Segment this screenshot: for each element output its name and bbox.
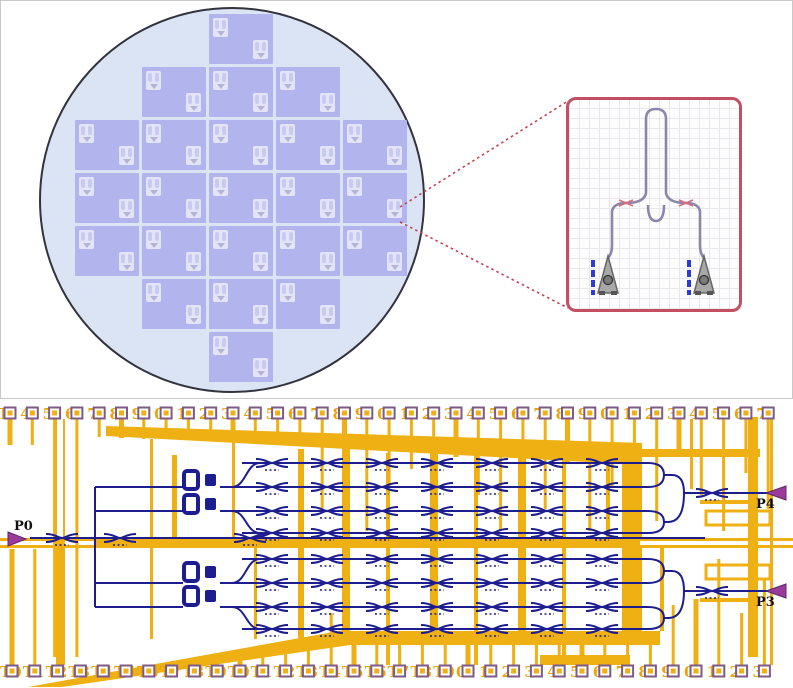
metal-trace: [444, 639, 447, 665]
wafer-die: [142, 226, 206, 276]
wafer-panel: [0, 0, 793, 399]
metal-trace: [770, 417, 773, 665]
die-device-glyph: [186, 199, 201, 218]
waveguide-combiner: [648, 591, 684, 629]
bond-pad-core: [476, 411, 481, 416]
bond-pad-core: [625, 669, 630, 674]
bond-pad-core: [10, 669, 15, 674]
metal-trace: [142, 419, 145, 439]
metal-trace: [655, 419, 658, 521]
bond-pad-core: [766, 411, 771, 416]
die-device-glyph: [253, 40, 268, 59]
wafer-die: [142, 173, 206, 223]
metal-trace: [232, 439, 235, 547]
bond-pad-core: [364, 411, 369, 416]
metal-trace: [284, 642, 287, 665]
die-device-glyph: [186, 146, 201, 165]
metal-trace: [298, 547, 304, 645]
bond-pad-core: [534, 669, 539, 674]
die-device-glyph: [253, 93, 268, 112]
bond-pad-core: [580, 669, 585, 674]
metal-trace: [421, 639, 424, 665]
bond-pad-core: [520, 411, 525, 416]
bond-pad-core: [648, 669, 653, 674]
wafer-die: [209, 14, 273, 64]
die-device-glyph: [213, 18, 228, 37]
die-device-glyph: [387, 146, 402, 165]
metal-trace: [56, 549, 59, 665]
port-label: P3: [756, 595, 775, 610]
bond-pad-core: [374, 669, 379, 674]
die-device-glyph: [146, 71, 161, 90]
metal-trace: [521, 419, 524, 473]
die-device-glyph: [186, 93, 201, 112]
metal-trace: [98, 419, 101, 437]
bond-pad-core: [409, 411, 414, 416]
metal-trace: [603, 639, 606, 665]
die-device-glyph: [387, 252, 402, 271]
die-device-glyph: [253, 305, 268, 324]
wafer-die: [209, 226, 273, 276]
grating-coupler-right: [687, 256, 714, 295]
metal-trace: [633, 419, 636, 469]
metal-trace: [330, 613, 333, 665]
metal-trace: [744, 419, 747, 473]
bond-pad-core: [654, 411, 659, 416]
die-device-glyph: [79, 230, 94, 249]
bond-pad-core: [164, 411, 169, 416]
bond-pad-core: [587, 411, 592, 416]
metal-trace: [611, 419, 614, 487]
bond-pad-core: [215, 669, 220, 674]
die-device-glyph: [146, 124, 161, 143]
metal-loop-trace: [706, 511, 770, 525]
metal-trace: [700, 500, 760, 504]
chip-layout-panel: T4567890123456789012345678901234567T0T1T…: [0, 399, 793, 688]
waveguide-sbend: [232, 463, 260, 533]
metal-trace: [558, 639, 561, 665]
bond-pad-core: [762, 669, 767, 674]
die-device-glyph: [253, 358, 268, 377]
loop-element: [205, 590, 216, 602]
bond-pad-core: [743, 411, 748, 416]
metal-trace: [276, 419, 279, 444]
metal-trace: [512, 639, 515, 665]
metal-trace: [690, 419, 693, 489]
die-device-glyph: [213, 283, 228, 302]
metal-trace: [63, 419, 65, 539]
die-device-glyph: [119, 146, 134, 165]
wafer-die: [209, 332, 273, 382]
die-device-glyph: [146, 230, 161, 249]
waveguide-combiner: [648, 493, 684, 533]
metal-trace: [622, 547, 642, 639]
wafer-die: [142, 279, 206, 329]
bond-pad-core: [208, 411, 213, 416]
die-device-glyph: [146, 283, 161, 302]
zoom-callout: [566, 97, 742, 312]
port-label: P4: [756, 497, 775, 512]
device-waveguide: [608, 109, 704, 258]
bond-pad-core: [30, 411, 35, 416]
bond-pad-core: [119, 411, 124, 416]
bond-pad-core: [397, 669, 402, 674]
waveguide-combiner: [648, 559, 684, 591]
metal-trace: [352, 639, 357, 665]
die-device-glyph: [320, 146, 335, 165]
metal-right-column: [748, 417, 758, 657]
die-device-glyph: [280, 283, 295, 302]
metal-trace: [649, 639, 652, 665]
wafer-die: [276, 67, 340, 117]
bond-pad-core: [231, 411, 236, 416]
bond-pad-core: [488, 669, 493, 674]
bond-pad-core: [557, 669, 562, 674]
metal-trace: [677, 419, 682, 457]
device-detail-drawing: [569, 100, 739, 309]
bond-pad-core: [431, 411, 436, 416]
wafer-die: [142, 67, 206, 117]
wafer-die: [276, 173, 340, 223]
bond-pad-core: [329, 669, 334, 674]
loop-element: [205, 474, 216, 486]
bond-pad-core: [466, 669, 471, 674]
metal-trace: [298, 419, 301, 445]
wafer-die: [209, 120, 273, 170]
bond-pad-core: [632, 411, 637, 416]
metal-trace: [626, 639, 629, 665]
bond-pad-core: [78, 669, 83, 674]
wafer-die: [75, 226, 139, 276]
figure: T4567890123456789012345678901234567T0T1T…: [0, 0, 793, 688]
wafer-die: [209, 67, 273, 117]
metal-trace: [150, 439, 153, 539]
bond-pad-core: [443, 669, 448, 674]
metal-trace: [740, 613, 743, 665]
metal-trace: [388, 419, 391, 487]
bond-pad-core: [721, 411, 726, 416]
bond-pad-core: [716, 669, 721, 674]
wafer-die: [75, 120, 139, 170]
metal-trace: [150, 547, 153, 639]
bond-pad-core: [511, 669, 516, 674]
bond-pad-core: [671, 669, 676, 674]
die-device-glyph: [320, 93, 335, 112]
metal-trace: [700, 598, 760, 602]
die-device-glyph: [213, 71, 228, 90]
loop-element: [184, 471, 198, 489]
metal-trace: [489, 639, 492, 665]
die-device-glyph: [320, 252, 335, 271]
metal-trace: [466, 639, 471, 665]
die-device-glyph: [213, 124, 228, 143]
metal-trace: [31, 419, 34, 445]
port-arrow: [8, 532, 26, 546]
die-device-glyph: [146, 177, 161, 196]
waveguide-combiner: [648, 463, 684, 493]
wafer-die: [343, 226, 407, 276]
bond-pad-core: [342, 411, 347, 416]
bond-pad-core: [275, 411, 280, 416]
metal-trace: [454, 419, 459, 457]
chip-layout-svg: T4567890123456789012345678901234567T0T1T…: [0, 399, 793, 688]
wafer-die: [343, 120, 407, 170]
metal-trace: [254, 419, 257, 443]
bond-pad-core: [52, 411, 57, 416]
die-device-glyph: [79, 124, 94, 143]
die-device-glyph: [119, 252, 134, 271]
bond-pad-core: [610, 411, 615, 416]
metal-trace: [722, 419, 725, 531]
wafer-die: [75, 173, 139, 223]
metal-trace: [535, 639, 538, 665]
wafer-die: [142, 120, 206, 170]
bond-pad-core: [306, 669, 311, 674]
metal-trace: [375, 639, 378, 665]
metal-trace: [165, 419, 168, 439]
metal-trace: [209, 419, 212, 441]
loop-element: [205, 566, 216, 578]
die-device-glyph: [347, 124, 362, 143]
metal-trace: [580, 639, 585, 665]
bond-pad-core: [8, 411, 13, 416]
bond-pad-core: [283, 669, 288, 674]
metal-trace: [10, 549, 15, 665]
die-device-glyph: [387, 199, 402, 218]
loop-element: [184, 495, 198, 513]
bond-pad-core: [387, 411, 392, 416]
bond-pad-core: [253, 411, 258, 416]
bond-pad-core: [238, 669, 243, 674]
bond-pad-core: [602, 669, 607, 674]
wafer-die: [276, 120, 340, 170]
wafer-die: [209, 279, 273, 329]
metal-trace: [767, 419, 770, 509]
metal-trace: [694, 599, 699, 665]
die-device-glyph: [320, 305, 335, 324]
port-label: P0: [14, 519, 33, 534]
bond-pad-core: [186, 411, 191, 416]
die-device-glyph: [280, 230, 295, 249]
die-device-glyph: [320, 199, 335, 218]
metal-trace: [342, 419, 347, 463]
bond-pad-core: [739, 669, 744, 674]
bond-pad-core: [320, 411, 325, 416]
metal-trace: [307, 638, 310, 665]
die-device-glyph: [280, 177, 295, 196]
die-device-glyph: [280, 71, 295, 90]
metal-loop-trace: [706, 565, 770, 579]
die-device-glyph: [253, 199, 268, 218]
die-device-glyph: [119, 199, 134, 218]
bond-pad-core: [192, 669, 197, 674]
die-device-glyph: [347, 230, 362, 249]
die-device-glyph: [213, 230, 228, 249]
wafer-die: [276, 279, 340, 329]
bond-pad-core: [146, 669, 151, 674]
metal-trace: [410, 419, 413, 469]
loop-element: [205, 498, 216, 510]
metal-trace: [672, 605, 675, 665]
metal-trace: [622, 447, 642, 539]
bond-pad-core: [101, 669, 106, 674]
bond-pad-core: [677, 411, 682, 416]
metal-trace: [172, 455, 177, 539]
die-device-glyph: [213, 336, 228, 355]
wafer-die: [209, 173, 273, 223]
metal-trace: [565, 419, 570, 463]
metal-trace: [33, 549, 36, 665]
bond-pad-core: [55, 669, 60, 674]
bond-pad-core: [297, 411, 302, 416]
bond-pad-core: [352, 669, 357, 674]
die-device-glyph: [79, 177, 94, 196]
bond-pad-core: [543, 411, 548, 416]
bond-pad-core: [74, 411, 79, 416]
bond-pad-core: [699, 411, 704, 416]
bond-pad-core: [454, 411, 459, 416]
die-device-glyph: [253, 146, 268, 165]
bond-pad-core: [141, 411, 146, 416]
metal-trace: [700, 419, 703, 495]
bond-pad-core: [124, 669, 129, 674]
bond-pad-core: [694, 669, 699, 674]
metal-trace: [717, 559, 720, 665]
bond-pad-core: [97, 411, 102, 416]
grating-coupler-left: [591, 256, 618, 295]
bond-pad-core: [32, 669, 37, 674]
wafer-die: [276, 226, 340, 276]
bond-pad-core: [260, 669, 265, 674]
metal-trace: [187, 419, 190, 440]
loop-element: [184, 587, 198, 605]
bond-pad-core: [169, 669, 174, 674]
die-device-glyph: [186, 252, 201, 271]
die-device-glyph: [280, 124, 295, 143]
die-device-glyph: [347, 177, 362, 196]
metal-trace: [606, 445, 610, 539]
wafer-die: [343, 173, 407, 223]
bond-pad-core: [498, 411, 503, 416]
die-device-glyph: [213, 177, 228, 196]
metal-trace: [398, 639, 401, 665]
bond-pad-core: [565, 411, 570, 416]
bond-pad-core: [420, 669, 425, 674]
loop-element: [184, 563, 198, 581]
die-device-glyph: [253, 252, 268, 271]
die-device-glyph: [186, 305, 201, 324]
